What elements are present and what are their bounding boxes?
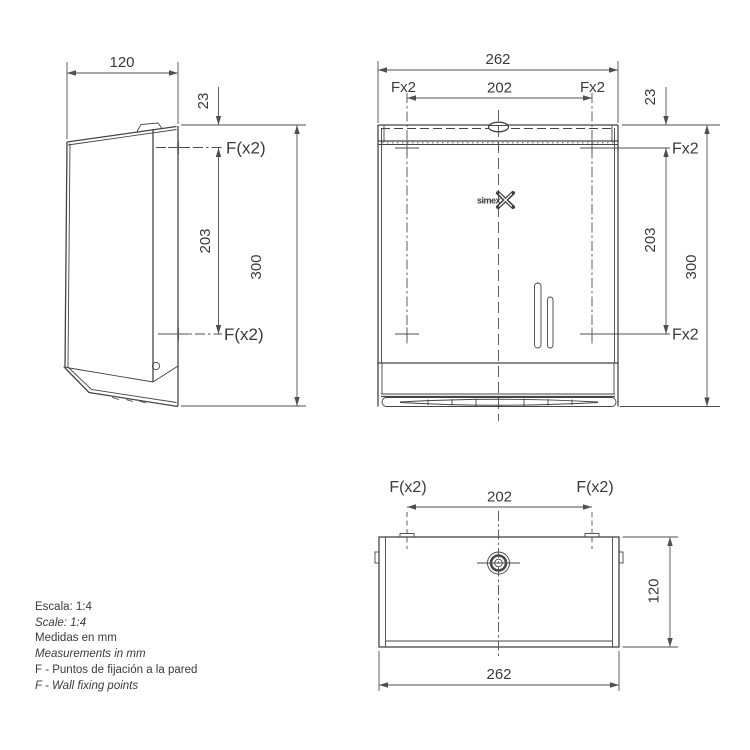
side-fixing-label-top: F(x2)	[226, 139, 266, 158]
front-width-dim-text: 262	[485, 51, 510, 68]
note-scale-en: Scale: 1:4	[35, 616, 197, 632]
front-fixing-label-right-lower: Fx2	[672, 327, 699, 344]
dimension-arrowhead	[663, 116, 668, 125]
bottom-fixing-span-dim-text: 202	[487, 489, 512, 506]
dimension-arrowhead	[663, 148, 668, 157]
dimension-arrowhead	[609, 67, 618, 72]
note-scale-es: Escala: 1:4	[35, 600, 197, 616]
front-fixing-marks	[395, 142, 670, 341]
dimension-arrowhead	[407, 95, 416, 100]
front-fixing-label-right-upper: Fx2	[672, 141, 699, 158]
front-height-dim-text: 300	[683, 254, 700, 279]
drawing-notes: Escala: 1:4 Scale: 1:4 Medidas en mm Mea…	[35, 600, 197, 694]
side-view: 120 23 203 300 F(x2) F(x2)	[64, 54, 307, 407]
note-units-es: Medidas en mm	[35, 631, 197, 647]
dimension-arrowhead	[704, 398, 709, 407]
side-height-dim-text: 300	[248, 254, 265, 279]
front-level-slot-left	[535, 283, 542, 348]
front-view-object-lines: simex	[378, 110, 618, 421]
side-spacing-dim-text: 203	[197, 228, 214, 253]
front-spacing-dim-text: 203	[642, 227, 659, 252]
dimension-arrowhead	[667, 537, 672, 546]
bottom-width-dim-text: 262	[486, 666, 511, 683]
front-fixing-label-top-right: Fx2	[580, 79, 605, 96]
dimension-arrowhead	[663, 325, 668, 334]
side-fixing-label-bottom: F(x2)	[224, 325, 264, 344]
technical-drawing-canvas: 120 23 203 300 F(x2) F(x2)	[0, 0, 750, 750]
dimension-arrowhead	[294, 125, 299, 134]
front-paper-mouth	[382, 398, 616, 407]
side-view-object-lines	[64, 123, 179, 407]
dimension-arrowhead	[667, 638, 672, 647]
side-offset-dim-text: 23	[195, 93, 212, 110]
brand-logo-x-icon	[498, 193, 513, 207]
front-fixing-label-top-left: Fx2	[391, 79, 416, 96]
dimension-arrowheads	[67, 67, 710, 687]
note-units-en: Measurements in mm	[35, 647, 197, 663]
brand-logo-text: simex	[477, 196, 501, 206]
front-fixing-span-dim-text: 202	[487, 80, 512, 97]
dimension-arrowhead	[610, 682, 619, 687]
front-offset-dim-text: 23	[642, 89, 659, 106]
dimension-arrowhead	[379, 682, 388, 687]
bottom-fixing-label-left: F(x2)	[389, 479, 426, 496]
dimension-arrowhead	[583, 95, 592, 100]
dimension-arrowhead	[169, 70, 178, 75]
bottom-depth-dim-text: 120	[646, 578, 663, 603]
dimension-arrowhead	[67, 70, 76, 75]
bottom-fixing-label-right: F(x2)	[576, 479, 613, 496]
front-level-slot-right	[548, 297, 554, 348]
bottom-view-object-lines	[375, 511, 623, 658]
bottom-view: F(x2) F(x2) 202 120 262	[375, 479, 678, 691]
dimension-arrowhead	[216, 148, 221, 157]
dimension-arrowhead	[294, 397, 299, 406]
bottom-view-dimensions: F(x2) F(x2) 202 120 262	[379, 479, 678, 691]
dimension-arrowhead	[216, 325, 221, 334]
dimension-arrowhead	[216, 116, 221, 125]
dimension-arrowhead	[378, 67, 387, 72]
front-view: simex	[378, 51, 720, 421]
note-fixing-en: F - Wall fixing points	[35, 679, 197, 695]
front-view-dimensions: 262 202 Fx2 Fx2	[378, 51, 720, 407]
side-view-dimensions: 120 23 203 300 F(x2) F(x2)	[67, 54, 306, 406]
side-width-dim-text: 120	[109, 54, 134, 71]
dimension-arrowhead	[704, 125, 709, 134]
dimension-arrowhead	[583, 504, 592, 509]
note-fixing-es: F - Puntos de fijación a la pared	[35, 663, 197, 679]
brand-logo: simex	[477, 193, 513, 207]
dimension-arrowhead	[407, 504, 416, 509]
